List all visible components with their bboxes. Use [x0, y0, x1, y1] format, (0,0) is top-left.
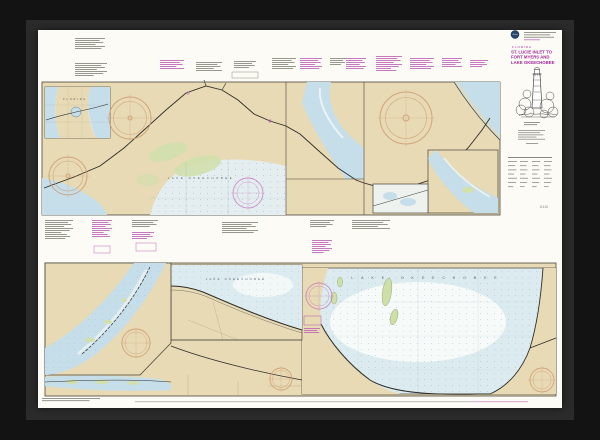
chart-number: 11428: [539, 205, 548, 209]
note-block: [42, 398, 100, 401]
florida-inset-label: FLORIDA: [63, 97, 87, 101]
note-box: [136, 243, 156, 251]
note-block: [132, 232, 154, 239]
river-detail-inset: [428, 150, 498, 213]
note-block: [92, 220, 112, 237]
note-block: [330, 58, 346, 65]
lake-label-top-strip: LAKE OKEECHOBEE: [168, 176, 235, 180]
divider-line: [526, 143, 538, 144]
note-block: [75, 63, 107, 76]
note-block: [346, 58, 366, 69]
credit-line-magenta: [470, 402, 528, 403]
note-block: [222, 222, 258, 233]
note-block: [75, 38, 105, 49]
title-block: FLORIDA ST. LUCIE INLET TO FORT MYERS AN…: [508, 31, 558, 210]
note-block: [312, 240, 332, 253]
chart-artwork: FLORIDA: [38, 30, 562, 408]
framed-chart-photo: FLORIDA: [0, 0, 600, 440]
note-block: [272, 58, 296, 69]
scale-box: [232, 72, 258, 78]
lake-label-sw-panel: LAKE OKEECHOBEE: [206, 277, 267, 281]
lake-okeechobee-main-panel: LAKE OKEECHOBEE: [302, 268, 556, 394]
florida-state-inset: FLORIDA: [45, 87, 110, 138]
small-detail-inset: [373, 184, 428, 213]
note-block: [376, 56, 402, 71]
lake-okeechobee-sw-panel: LAKE OKEECHOBEE: [171, 265, 302, 340]
note-block: [310, 220, 334, 227]
note-block: [442, 58, 462, 67]
note-block: [524, 32, 556, 38]
note-block: [470, 60, 488, 67]
header-magenta-line: [524, 39, 540, 40]
bottom-strip-panel: LAKE OKEECHOBEE LAKE OKEECHOBEE: [45, 263, 556, 396]
note-block: [410, 58, 434, 69]
note-block: [524, 122, 540, 125]
chart-paper: FLORIDA: [38, 30, 562, 408]
note-block: [518, 130, 545, 140]
note-block: [196, 62, 222, 71]
note-block: [234, 61, 256, 68]
table-column: [544, 161, 552, 187]
table-header-line: [508, 157, 552, 158]
chart-title-line-3: LAKE OKEECHOBEE: [511, 60, 555, 65]
lake-label-main: LAKE OKEECHOBEE: [351, 276, 504, 280]
note-box: [94, 246, 110, 253]
credit-line: [135, 402, 470, 403]
table-column: [508, 161, 517, 187]
caloosahatchee-estuary-panel: [45, 263, 171, 375]
note-block: [300, 58, 322, 69]
note-block: [45, 220, 73, 239]
table-column: [532, 161, 540, 187]
note-block: [160, 60, 184, 69]
note-block: [352, 220, 390, 229]
lighthouse-illustration: [516, 68, 558, 118]
table-column: [520, 161, 528, 187]
note-block: [132, 220, 158, 227]
region-label: FLORIDA: [512, 45, 532, 49]
top-strip-panel: FLORIDA: [42, 80, 500, 215]
